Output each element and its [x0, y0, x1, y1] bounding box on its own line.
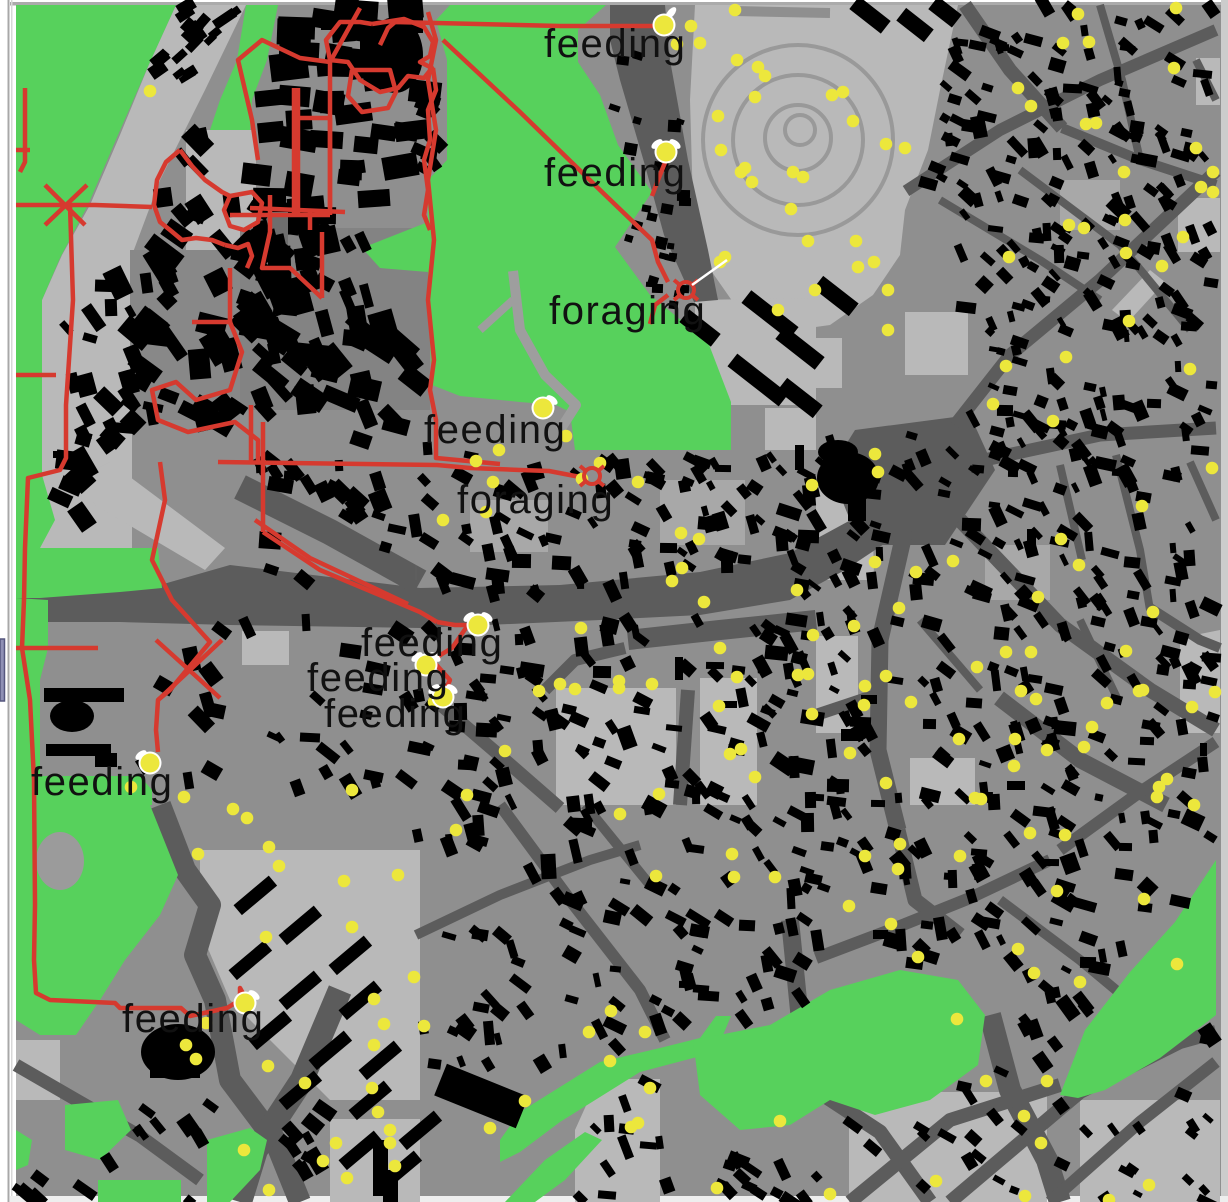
svg-text:feeding: feeding	[544, 151, 686, 195]
svg-text:feeding: feeding	[324, 692, 466, 736]
svg-text:feeding: feeding	[544, 22, 686, 66]
svg-text:feeding: feeding	[424, 408, 566, 452]
svg-text:feeding: feeding	[31, 760, 173, 804]
svg-text:feeding: feeding	[122, 997, 264, 1041]
svg-text:foraging: foraging	[457, 478, 614, 522]
svg-text:foraging: foraging	[549, 289, 706, 333]
